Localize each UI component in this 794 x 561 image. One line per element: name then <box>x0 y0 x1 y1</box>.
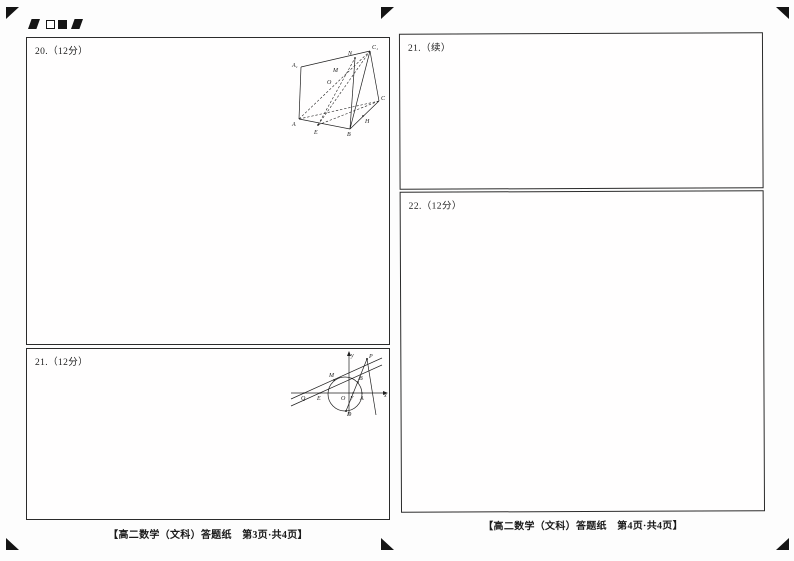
point-label: P <box>368 354 373 360</box>
point-label: F <box>349 396 354 402</box>
point-label: O <box>341 396 346 402</box>
omr-square-filled-icon <box>58 20 67 29</box>
omr-triangle-icon <box>71 19 83 29</box>
point-label: Q <box>301 396 306 402</box>
answer-box-q22: 22.（12分） <box>400 190 765 513</box>
question-label-20: 20.（12分） <box>35 43 88 57</box>
answer-box-q21: 21.（12分） y x <box>26 348 390 520</box>
question-label-21-continued: 21.（续） <box>408 40 451 54</box>
vertex-label: H <box>364 119 370 125</box>
answer-box-q20: 20.（12分） A₁ C₁ N M O <box>26 37 390 345</box>
prism-figure: A₁ C₁ N M O A E B H C <box>291 40 386 136</box>
axis-label-x: x <box>383 393 387 399</box>
point-label: M <box>328 373 335 379</box>
vertex-label: C <box>381 96 386 102</box>
vertex-label: E <box>313 130 318 136</box>
page-footer-left: 【高二数学（文科）答题纸 第3页·共4页】 <box>26 526 390 541</box>
page-4: 21.（续） 22.（12分） 【高二数学（文科）答题纸 第4页·共4页】 <box>0 0 793 3</box>
conic-figure: y x P M B Q E O F A D <box>289 350 389 416</box>
vertex-label: A <box>291 122 296 128</box>
vertex-label: N <box>347 51 353 57</box>
registration-triangle-icon <box>381 7 394 19</box>
question-label-22: 22.（12分） <box>409 198 462 212</box>
answer-sheet: 20.（12分） A₁ C₁ N M O <box>0 0 794 561</box>
registration-triangle-icon <box>776 538 789 550</box>
registration-triangle-icon <box>776 7 789 19</box>
vertex-label: C₁ <box>372 45 378 51</box>
omr-triangle-icon <box>28 19 40 29</box>
point-label: B <box>359 376 363 382</box>
point-label: D <box>346 412 352 416</box>
registration-triangle-icon <box>6 538 19 550</box>
omr-square-outline-icon <box>46 20 55 29</box>
point-label: A <box>359 396 364 402</box>
question-label-21: 21.（12分） <box>35 354 88 368</box>
answer-box-q21-continued: 21.（续） <box>399 32 764 190</box>
point-label: E <box>316 396 321 402</box>
vertex-label: A₁ <box>291 63 298 69</box>
vertex-label: O <box>327 80 332 86</box>
registration-triangle-icon <box>6 7 19 19</box>
vertex-label: M <box>332 68 339 74</box>
vertex-label: B <box>347 132 351 136</box>
page-footer-right: 【高二数学（文科）答题纸 第4页·共4页】 <box>401 516 765 533</box>
axis-label-y: y <box>350 353 354 359</box>
